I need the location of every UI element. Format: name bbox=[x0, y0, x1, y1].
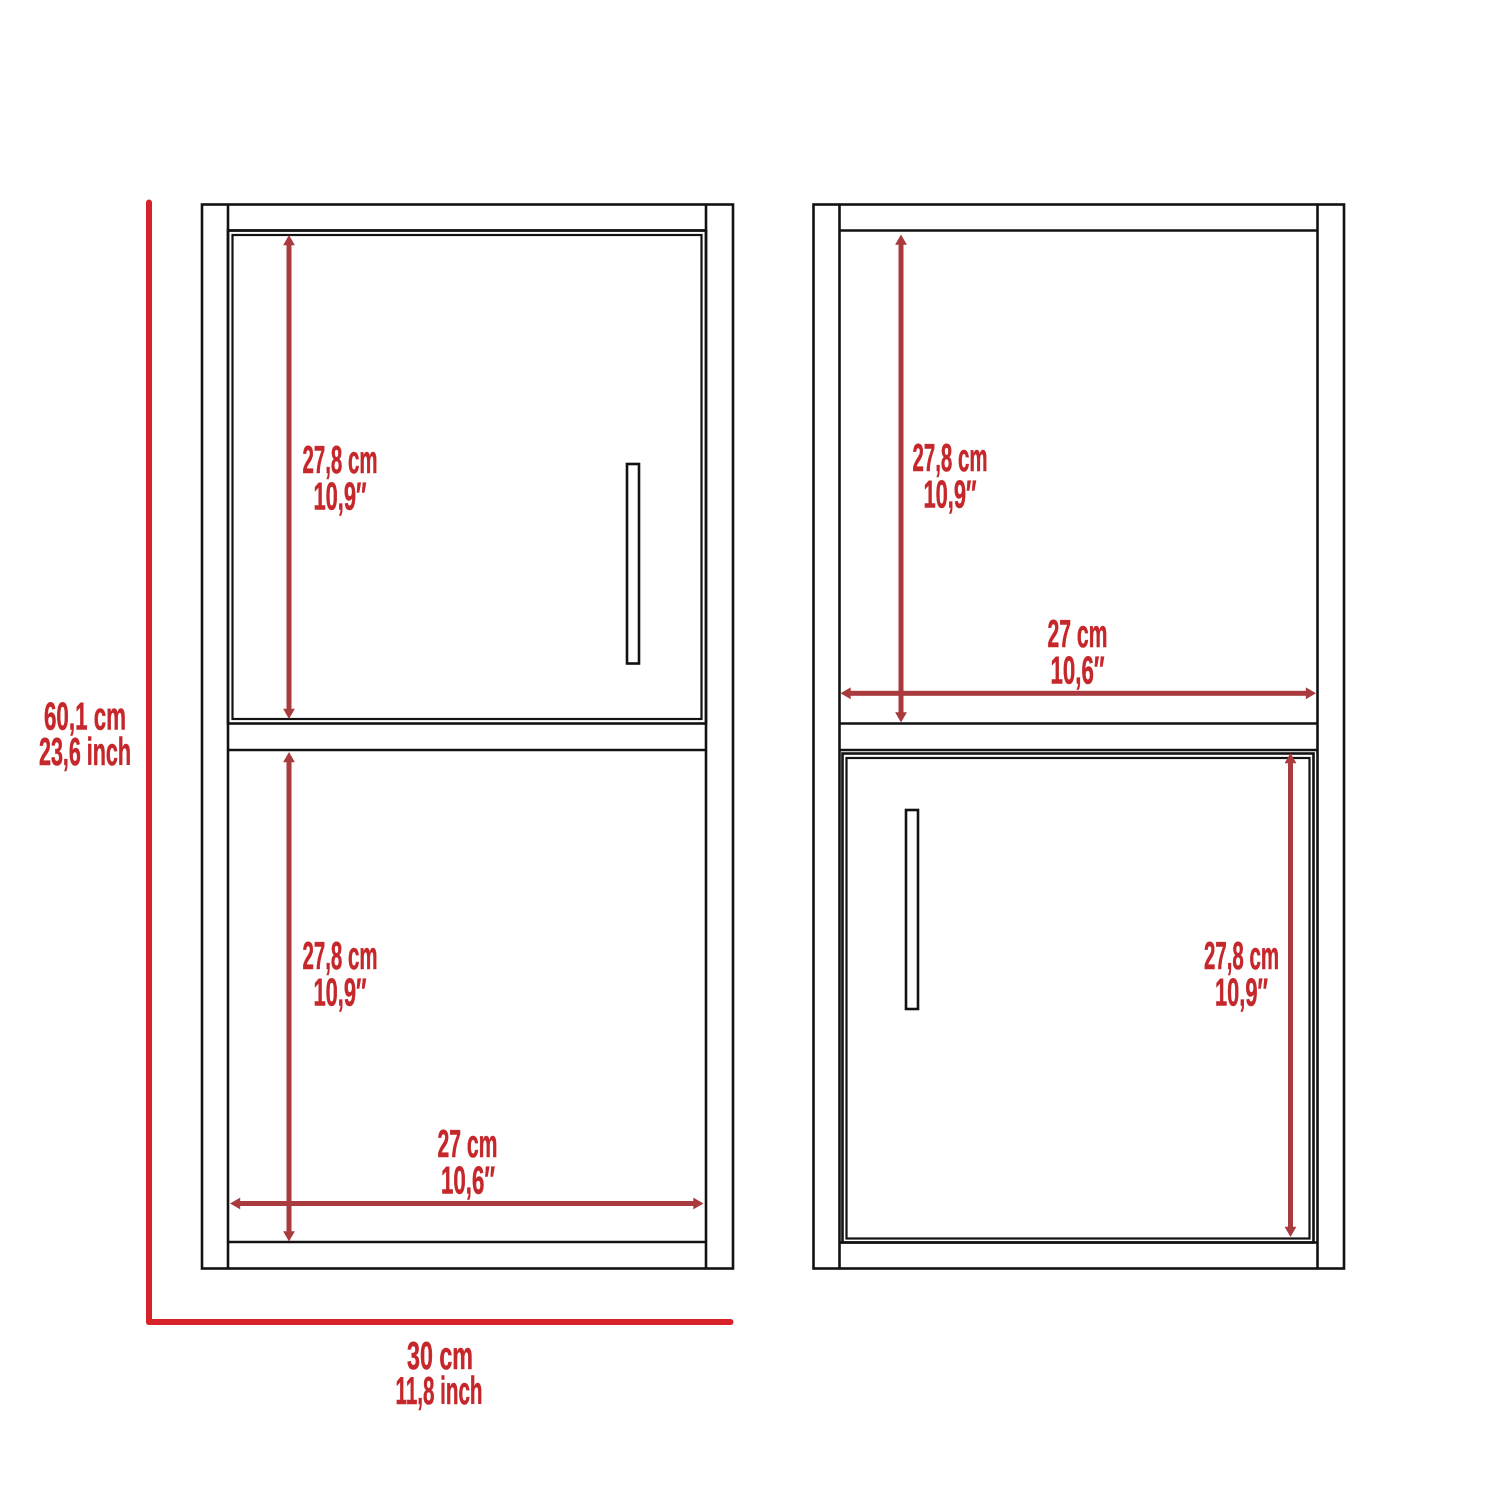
svg-text:10,6″: 10,6″ bbox=[1051, 650, 1105, 693]
svg-text:23,6 inch: 23,6 inch bbox=[39, 731, 131, 774]
svg-text:11,8 inch: 11,8 inch bbox=[396, 1370, 483, 1413]
svg-text:10,9″: 10,9″ bbox=[314, 972, 367, 1015]
svg-text:10,9″: 10,9″ bbox=[1215, 972, 1268, 1015]
svg-text:10,9″: 10,9″ bbox=[924, 474, 977, 517]
svg-text:10,6″: 10,6″ bbox=[441, 1160, 495, 1203]
svg-text:10,9″: 10,9″ bbox=[314, 476, 367, 519]
